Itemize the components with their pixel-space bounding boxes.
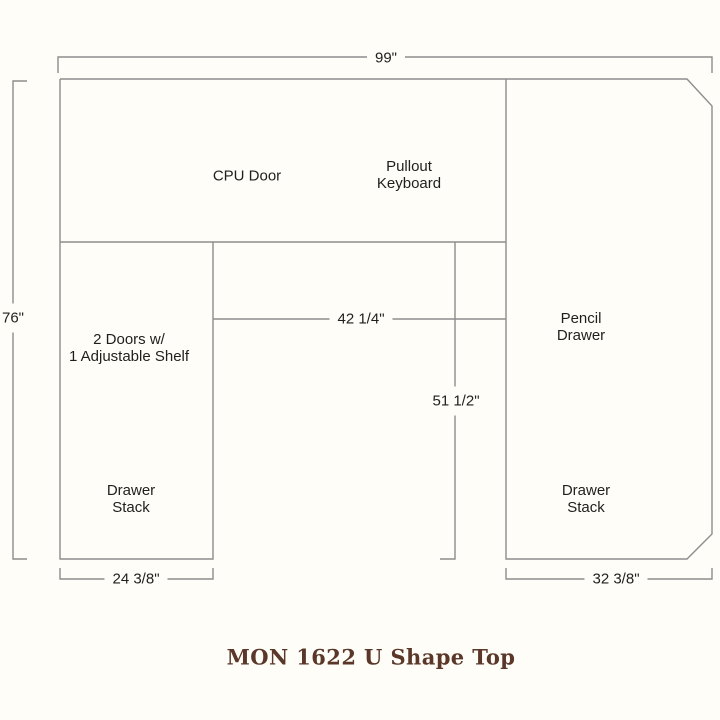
cpu-door-label: CPU Door — [213, 169, 281, 186]
dim-overall-depth-value: 76" — [0, 304, 27, 333]
pullout-keyboard-label: Pullout Keyboard — [377, 159, 441, 193]
dim-kneehole-width-value: 42 1/4" — [329, 308, 392, 331]
dim-left-pedestal-width-value: 24 3/8" — [104, 568, 167, 591]
pencil-drawer-label: Pencil Drawer — [557, 311, 605, 345]
page-title: MON 1622 U Shape Top — [227, 645, 516, 670]
drawer-stack-left-label: Drawer Stack — [107, 483, 155, 517]
diagram-canvas: CPU Door Pullout Keyboard 2 Doors w/ 1 A… — [0, 0, 720, 720]
dim-kneehole-depth-value: 51 1/2" — [429, 387, 482, 416]
drawer-stack-right-label: Drawer Stack — [562, 483, 610, 517]
dim-overall-width-value: 99" — [367, 47, 405, 70]
dim-right-pedestal-width-value: 32 3/8" — [584, 568, 647, 591]
doors-shelf-label: 2 Doors w/ 1 Adjustable Shelf — [69, 332, 189, 366]
